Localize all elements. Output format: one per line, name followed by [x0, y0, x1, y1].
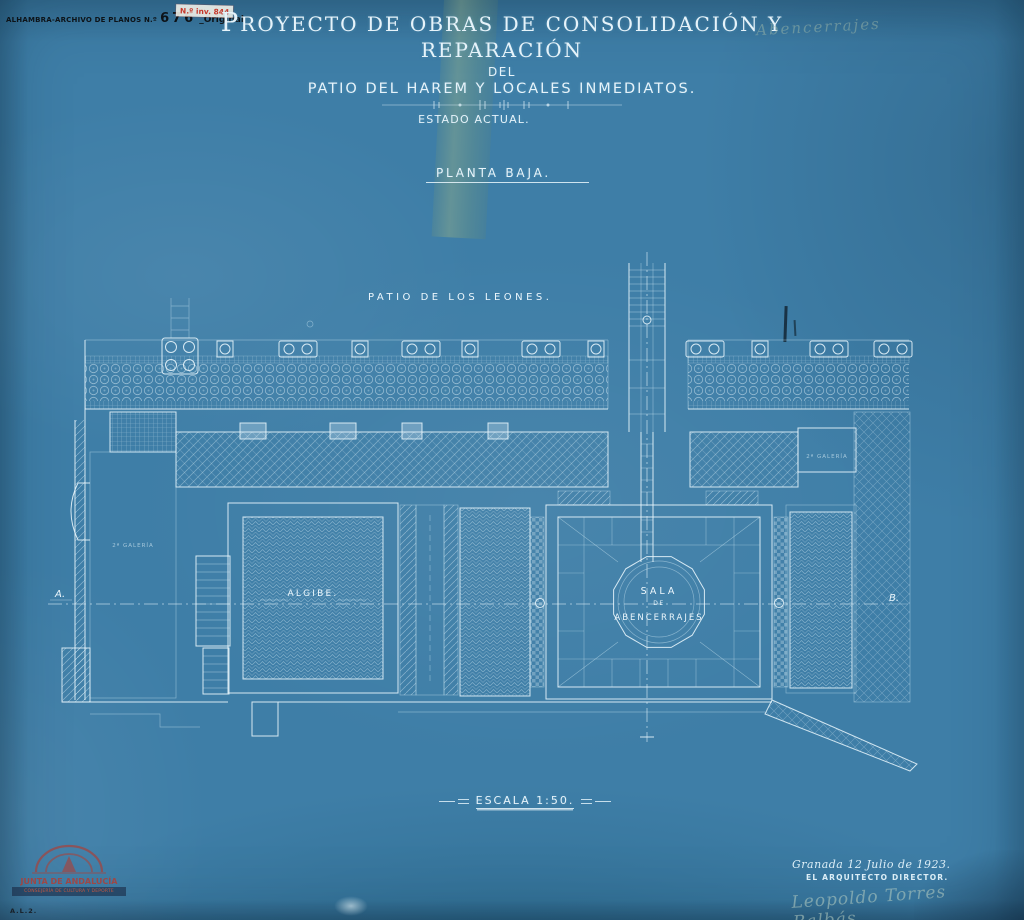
label-algibe: ALGIBE.	[288, 589, 339, 599]
scale-flourish-left	[439, 799, 469, 804]
plan-type-label: PLANTA BAJA.	[426, 162, 589, 181]
right-room	[786, 505, 856, 693]
title-block: PROYECTO DE OBRAS DE CONSOLIDACIÓN Y REP…	[210, 8, 794, 126]
label-sala-line2: DE	[653, 600, 664, 607]
patio-gallery	[85, 298, 912, 409]
title-line4: ESTADO ACTUAL.	[182, 113, 766, 126]
blueprint-sheet: 2ª GALERÍA 2ª GALERÍA ALGIBE.	[0, 0, 1024, 920]
title-flourish	[382, 99, 622, 111]
floor-plan-drawing: 2ª GALERÍA 2ª GALERÍA ALGIBE.	[0, 0, 1024, 920]
scale-label: ESCALA 1:50.	[476, 794, 575, 809]
junta-org-label: JUNTA DE ANDALUCÍA	[12, 877, 126, 886]
corridor-band: 2ª GALERÍA	[176, 423, 856, 487]
scale-block: ESCALA 1:50.	[398, 794, 652, 809]
middle-strips	[400, 505, 530, 696]
junta-stamp: JUNTA DE ANDALUCÍA CONSEJERÍA DE CULTURA…	[12, 842, 126, 896]
junta-dept-label: CONSEJERÍA DE CULTURA Y DEPORTE	[12, 887, 126, 896]
label-patio-leones: PATIO DE LOS LEONES.	[368, 292, 552, 303]
junta-arches-icon	[30, 842, 108, 876]
archive-label: ALHAMBRA-ARCHIVO DE PLANOS N.º	[6, 16, 157, 24]
title-line1: PROYECTO DE OBRAS DE CONSOLIDACIÓN Y REP…	[210, 8, 794, 62]
title-line3: PATIO DEL HAREM Y LOCALES INMEDIATOS.	[210, 81, 794, 97]
label-gallery-left: 2ª GALERÍA	[112, 542, 154, 549]
water-channel	[629, 252, 665, 742]
label-sala-line3: ABENCERRAJES	[614, 613, 703, 623]
section-marker-b: B.	[889, 593, 899, 604]
algibe-room: ALGIBE.	[196, 503, 398, 694]
scale-flourish-right	[581, 799, 611, 804]
architect-signature: Leopoldo Torres Balbás	[791, 877, 1018, 920]
signature-block: Granada 12 Julio de 1923. EL ARQUITECTO …	[792, 858, 1017, 920]
label-sala-line1: SALA	[641, 586, 678, 597]
label-gallery-right: 2ª GALERÍA	[806, 453, 848, 460]
title-line2: DEL	[210, 65, 794, 79]
corner-code: A.L.2.	[10, 907, 37, 915]
signature-date: Granada 12 Julio de 1923.	[792, 858, 1017, 871]
section-marker-a: A.	[54, 589, 65, 600]
staircase	[196, 556, 230, 646]
